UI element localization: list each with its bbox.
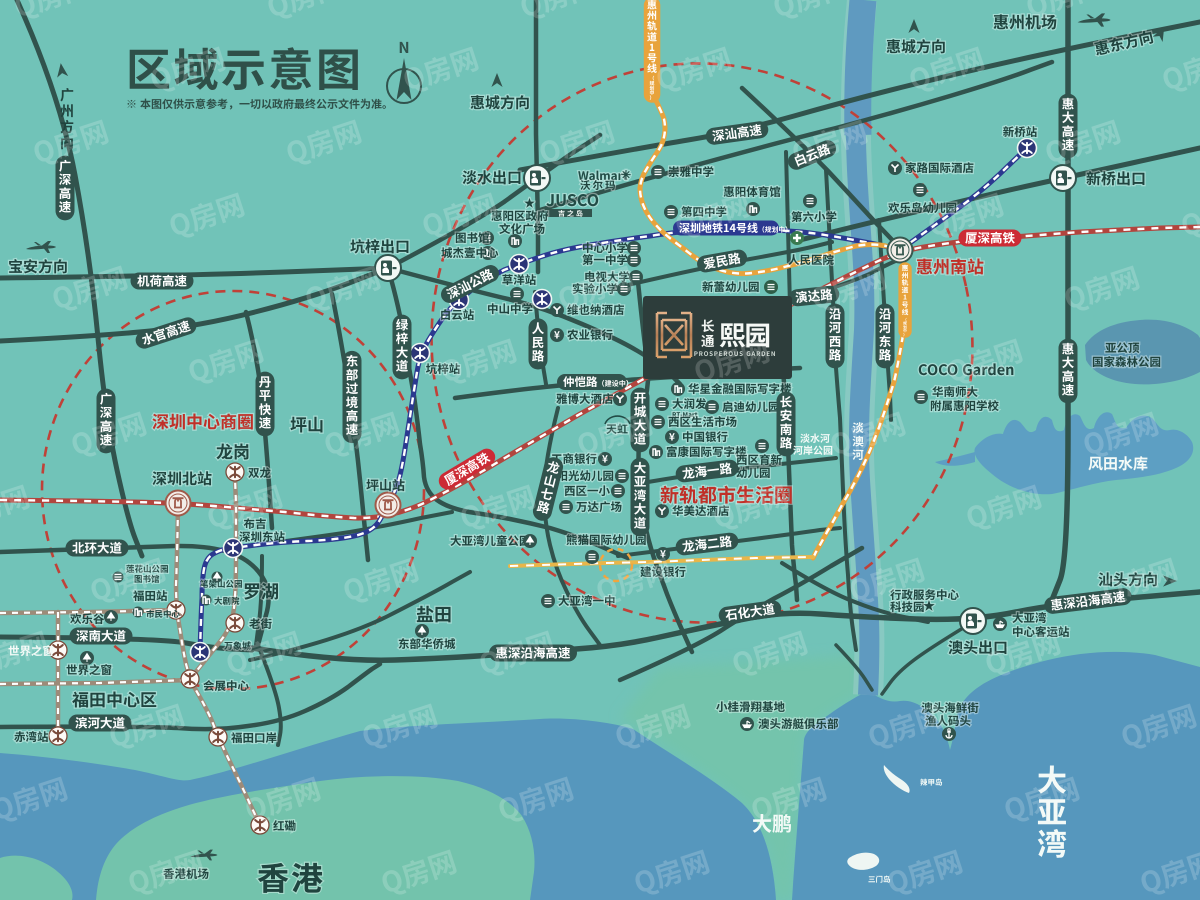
svg-text:深圳东站: 深圳东站 bbox=[239, 529, 285, 545]
svg-text:东部华侨城: 东部华侨城 bbox=[398, 636, 456, 652]
svg-text:）: ） bbox=[903, 332, 907, 338]
svg-text:启迪幼儿园: 启迪幼儿园 bbox=[722, 399, 780, 415]
svg-text:幼儿园: 幼儿园 bbox=[736, 465, 771, 481]
svg-text:盐田: 盐田 bbox=[416, 601, 452, 627]
svg-text:坪山: 坪山 bbox=[290, 411, 324, 436]
svg-text:中国银行: 中国银行 bbox=[682, 429, 728, 445]
svg-text:吉 之 岛: 吉 之 岛 bbox=[558, 209, 583, 219]
svg-text:城杰壹中心: 城杰壹中心 bbox=[441, 245, 499, 261]
svg-text:福田口岸: 福田口岸 bbox=[231, 730, 277, 746]
svg-text:万达广场: 万达广场 bbox=[576, 499, 622, 515]
svg-text:淡水出口: 淡水出口 bbox=[462, 167, 522, 188]
svg-text:辣甲岛: 辣甲岛 bbox=[920, 777, 943, 788]
svg-text:道: 道 bbox=[396, 356, 409, 375]
svg-text:人民医院: 人民医院 bbox=[788, 252, 834, 268]
svg-text:坪山站: 坪山站 bbox=[366, 475, 405, 494]
svg-text:科技园: 科技园 bbox=[890, 599, 925, 615]
svg-text:路: 路 bbox=[780, 433, 793, 452]
svg-text:线: 线 bbox=[902, 306, 909, 316]
svg-text:附属惠阳学校: 附属惠阳学校 bbox=[930, 398, 999, 414]
svg-text:¥: ¥ bbox=[669, 429, 675, 444]
svg-text:新桥站: 新桥站 bbox=[1003, 124, 1038, 140]
svg-text:）: ） bbox=[650, 95, 655, 102]
svg-text:路: 路 bbox=[532, 346, 545, 365]
svg-text:雅博大酒店: 雅博大酒店 bbox=[556, 391, 614, 407]
svg-text:深圳北站: 深圳北站 bbox=[152, 468, 212, 489]
svg-text:富康国际写字楼: 富康国际写字楼 bbox=[666, 444, 747, 460]
svg-text:N: N bbox=[398, 37, 409, 58]
svg-text:阳光幼儿园: 阳光幼儿园 bbox=[557, 468, 615, 484]
svg-text:新蕾幼儿园: 新蕾幼儿园 bbox=[702, 279, 760, 295]
svg-text:草洋站: 草洋站 bbox=[502, 272, 537, 288]
svg-text:中山中学: 中山中学 bbox=[487, 301, 533, 317]
svg-text:✳: ✳ bbox=[621, 166, 631, 183]
svg-text:罗湖: 罗湖 bbox=[243, 578, 279, 604]
svg-text:小桂滑翔基地: 小桂滑翔基地 bbox=[716, 699, 785, 715]
svg-text:文化广场: 文化广场 bbox=[499, 221, 545, 237]
svg-text:西区生活市场: 西区生活市场 bbox=[668, 414, 737, 430]
svg-text:湾: 湾 bbox=[1037, 820, 1067, 864]
svg-text:赤湾站: 赤湾站 bbox=[14, 729, 49, 745]
svg-text:※ 本图仅供示意参考，一切以政府最终公示文件为准。: ※ 本图仅供示意参考，一切以政府最终公示文件为准。 bbox=[126, 96, 393, 112]
svg-text:路: 路 bbox=[879, 345, 892, 364]
svg-text:★: ★ bbox=[923, 597, 935, 614]
svg-text:深圳中心商圈: 深圳中心商圈 bbox=[152, 408, 254, 433]
svg-text:崇雅中学: 崇雅中学 bbox=[668, 164, 714, 180]
svg-text:河岸公园: 河岸公园 bbox=[793, 442, 833, 457]
svg-text:新桥出口: 新桥出口 bbox=[1086, 168, 1146, 189]
svg-text:¥: ¥ bbox=[554, 327, 560, 342]
svg-text:会展中心: 会展中心 bbox=[203, 678, 249, 694]
svg-text:JUSCO: JUSCO bbox=[546, 187, 599, 211]
svg-text:深南大道: 深南大道 bbox=[76, 626, 127, 645]
svg-text:大剧院: 大剧院 bbox=[214, 595, 240, 607]
svg-text:家路国际酒店: 家路国际酒店 bbox=[905, 160, 974, 176]
svg-text:北环大道: 北环大道 bbox=[72, 538, 123, 557]
svg-text:龙岗: 龙岗 bbox=[216, 438, 250, 463]
svg-text:白云站: 白云站 bbox=[440, 307, 475, 323]
svg-text:速: 速 bbox=[1062, 380, 1075, 399]
svg-text:路: 路 bbox=[829, 345, 842, 364]
svg-text:速: 速 bbox=[259, 413, 272, 432]
svg-text:道: 道 bbox=[634, 512, 647, 531]
svg-text:宝安方向: 宝安方向 bbox=[8, 256, 68, 277]
svg-text:第六小学: 第六小学 bbox=[791, 209, 837, 225]
svg-text:香港: 香港 bbox=[257, 854, 325, 900]
svg-text:机荷高速: 机荷高速 bbox=[137, 271, 188, 290]
svg-text:坑梓出口: 坑梓出口 bbox=[350, 236, 410, 257]
svg-text:澳头游艇俱乐部: 澳头游艇俱乐部 bbox=[758, 716, 839, 732]
svg-text:惠城方向: 惠城方向 bbox=[470, 92, 530, 113]
svg-text:速: 速 bbox=[59, 196, 72, 215]
svg-text:惠州南站: 惠州南站 bbox=[916, 253, 984, 278]
svg-text:西区一小: 西区一小 bbox=[564, 483, 610, 499]
svg-text:市民中心: 市民中心 bbox=[146, 608, 181, 620]
svg-text:世界之窗: 世界之窗 bbox=[66, 662, 112, 678]
svg-text:国家森林公园: 国家森林公园 bbox=[1092, 354, 1161, 370]
svg-text:农业银行: 农业银行 bbox=[567, 327, 613, 343]
svg-text:大亚湾儿童公园: 大亚湾儿童公园 bbox=[450, 533, 531, 549]
